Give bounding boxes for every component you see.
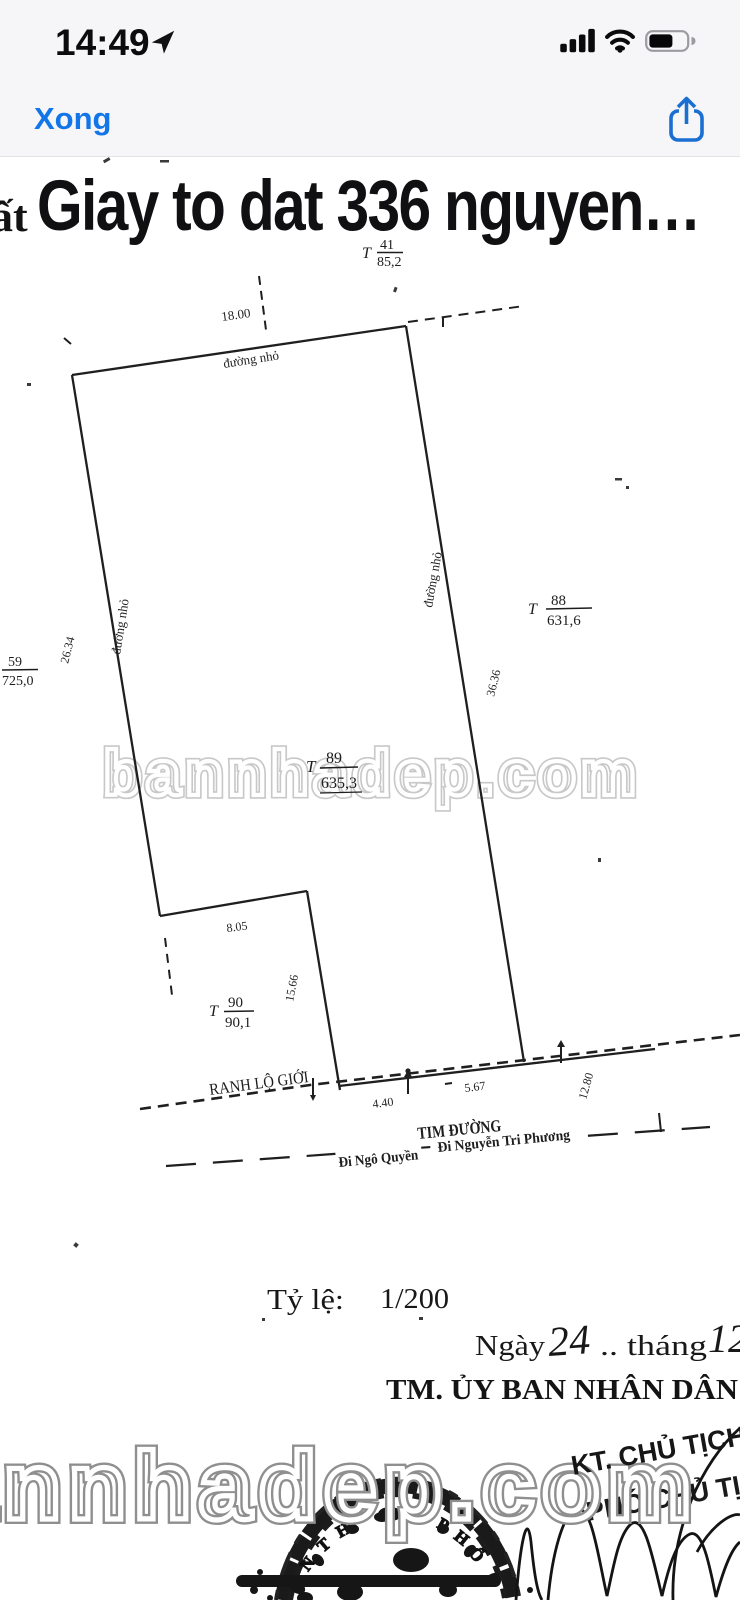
svg-text:88: 88 [551, 593, 566, 609]
svg-text:90: 90 [228, 995, 243, 1011]
svg-text:bannhadep.com: bannhadep.com [103, 739, 641, 809]
svg-text:26.34: 26.34 [57, 635, 77, 665]
svg-text:89: 89 [326, 750, 342, 767]
svg-text:631,6: 631,6 [547, 613, 581, 629]
svg-text:đường nhỏ: đường nhỏ [420, 551, 445, 609]
svg-text:1/200: 1/200 [380, 1284, 449, 1315]
svg-text:Ngày: Ngày [475, 1331, 545, 1362]
svg-text:5.67: 5.67 [464, 1079, 487, 1095]
svg-text:41: 41 [380, 238, 394, 253]
svg-text:36.36: 36.36 [483, 668, 503, 698]
svg-text:Tỷ lệ:: Tỷ lệ: [267, 1285, 344, 1316]
svg-text:RANH LỘ GIỚI: RANH LỘ GIỚI [208, 1067, 310, 1099]
svg-text:59: 59 [8, 655, 22, 670]
svg-text:15.66: 15.66 [282, 973, 301, 1002]
svg-text:12.80: 12.80 [575, 1071, 596, 1101]
svg-text:8.05: 8.05 [226, 919, 249, 935]
svg-text:T: T [528, 601, 538, 618]
svg-text:4.40: 4.40 [372, 1095, 395, 1111]
svg-text:725,0: 725,0 [2, 674, 34, 689]
svg-text:24: 24 [546, 1317, 591, 1366]
svg-text:12: 12 [708, 1316, 740, 1361]
svg-text:18.00: 18.00 [220, 305, 251, 324]
svg-text:85,2: 85,2 [377, 255, 402, 270]
svg-text:635,3: 635,3 [321, 775, 357, 792]
svg-text:.. tháng: .. tháng [600, 1331, 707, 1362]
svg-text:đường nhỏ: đường nhỏ [108, 598, 132, 656]
svg-text:90,1: 90,1 [225, 1015, 251, 1031]
svg-text:TM. ỦY BAN NHÂN DÂN: TM. ỦY BAN NHÂN DÂN [386, 1373, 738, 1406]
svg-text:T: T [362, 245, 372, 262]
svg-text:T: T [209, 1003, 219, 1020]
svg-text:T: T [306, 757, 317, 776]
